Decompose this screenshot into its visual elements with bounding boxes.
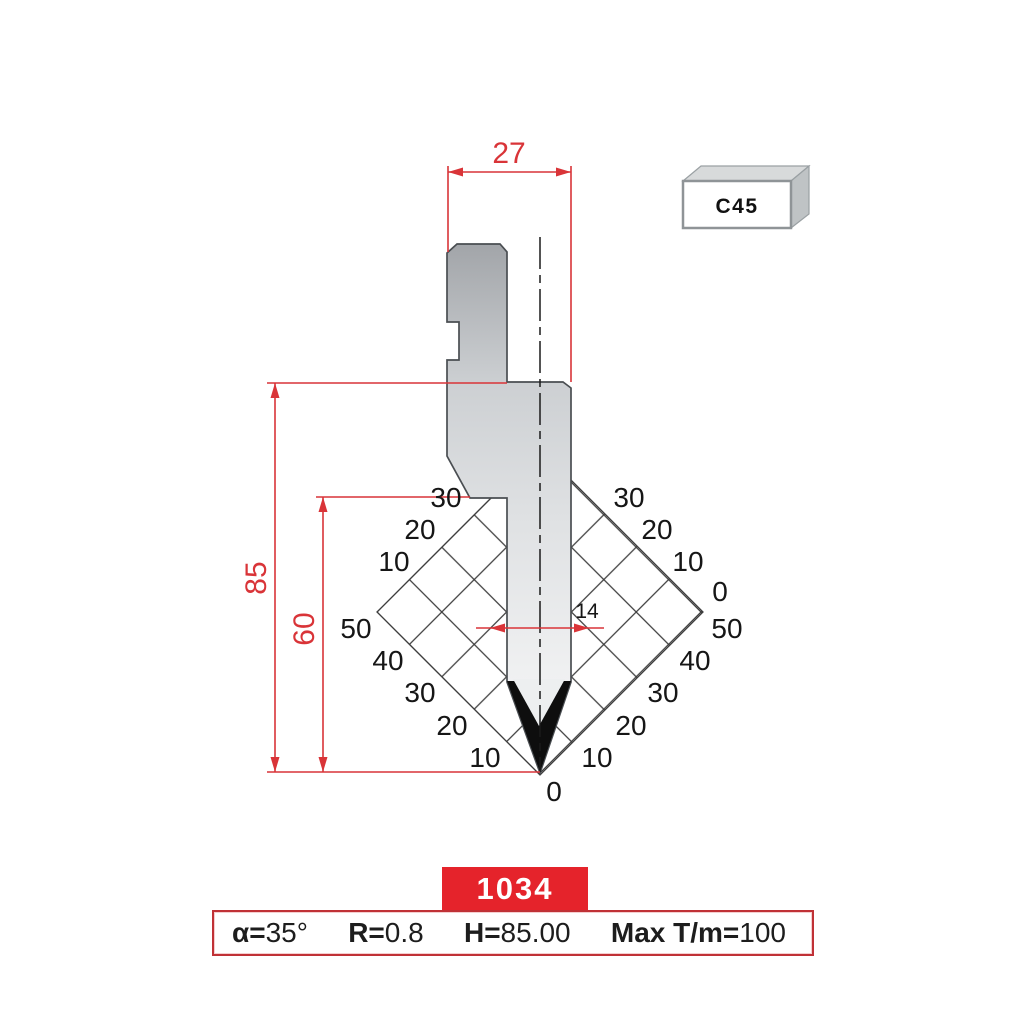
spec-item-radius: R=0.8	[348, 917, 424, 949]
arrow-down-icon	[271, 757, 280, 772]
part-number-badge: 1034	[442, 867, 588, 910]
angle-scale-label: 20	[641, 514, 672, 545]
angle-scale-label: 30	[404, 677, 435, 708]
spec-radius-label: R=	[348, 917, 385, 948]
technical-drawing-page: 27 85 60 14 30 20 10 50 40 30 20 10 30 2…	[0, 0, 1024, 1024]
spec-height-label: H=	[464, 917, 501, 948]
angle-scale-label: 10	[469, 742, 500, 773]
angle-scale-label: 10	[581, 742, 612, 773]
arrow-down-icon	[319, 757, 328, 772]
spec-height-value: 85.00	[501, 917, 571, 948]
angle-scale-label: 40	[679, 645, 710, 676]
angle-scale-label: 40	[372, 645, 403, 676]
angle-scale-label: 20	[615, 710, 646, 741]
material-box-top-face	[683, 166, 809, 181]
dim-total-height-label: 85	[240, 561, 273, 594]
spec-alpha-value: 35°	[266, 917, 308, 948]
angle-scale-label: 50	[711, 613, 742, 644]
spec-item-height: H=85.00	[464, 917, 571, 949]
angle-scale-label: 20	[404, 514, 435, 545]
angle-scale-label: 0	[712, 576, 728, 607]
dim-working-height-label: 60	[288, 612, 321, 645]
arrow-left-icon	[448, 168, 463, 177]
angle-scale-label: 30	[430, 482, 461, 513]
dim-top-width-label: 27	[492, 137, 525, 170]
spec-max-load-label: Max T/m=	[611, 917, 739, 948]
arrow-up-icon	[271, 383, 280, 398]
material-label: C45	[715, 195, 758, 218]
arrow-up-icon	[319, 497, 328, 512]
angle-scale-label: 50	[340, 613, 371, 644]
dim-tip-width-label: 14	[575, 600, 599, 623]
spec-max-load-value: 100	[739, 917, 786, 948]
angle-scale-label: 30	[647, 677, 678, 708]
angle-scale-label: 20	[436, 710, 467, 741]
spec-alpha-label: α=	[232, 917, 266, 948]
angle-scale-label: 10	[378, 546, 409, 577]
spec-item-max-load: Max T/m=100	[611, 917, 786, 949]
arrow-right-icon	[556, 168, 571, 177]
spec-bar: α=35° R=0.8 H=85.00 Max T/m=100	[212, 910, 814, 956]
material-box: C45	[683, 166, 809, 228]
angle-scale-label: 30	[613, 482, 644, 513]
angle-scale-label: 0	[546, 776, 562, 807]
spec-radius-value: 0.8	[385, 917, 424, 948]
angle-scale-label: 10	[672, 546, 703, 577]
spec-item-alpha: α=35°	[232, 917, 308, 949]
